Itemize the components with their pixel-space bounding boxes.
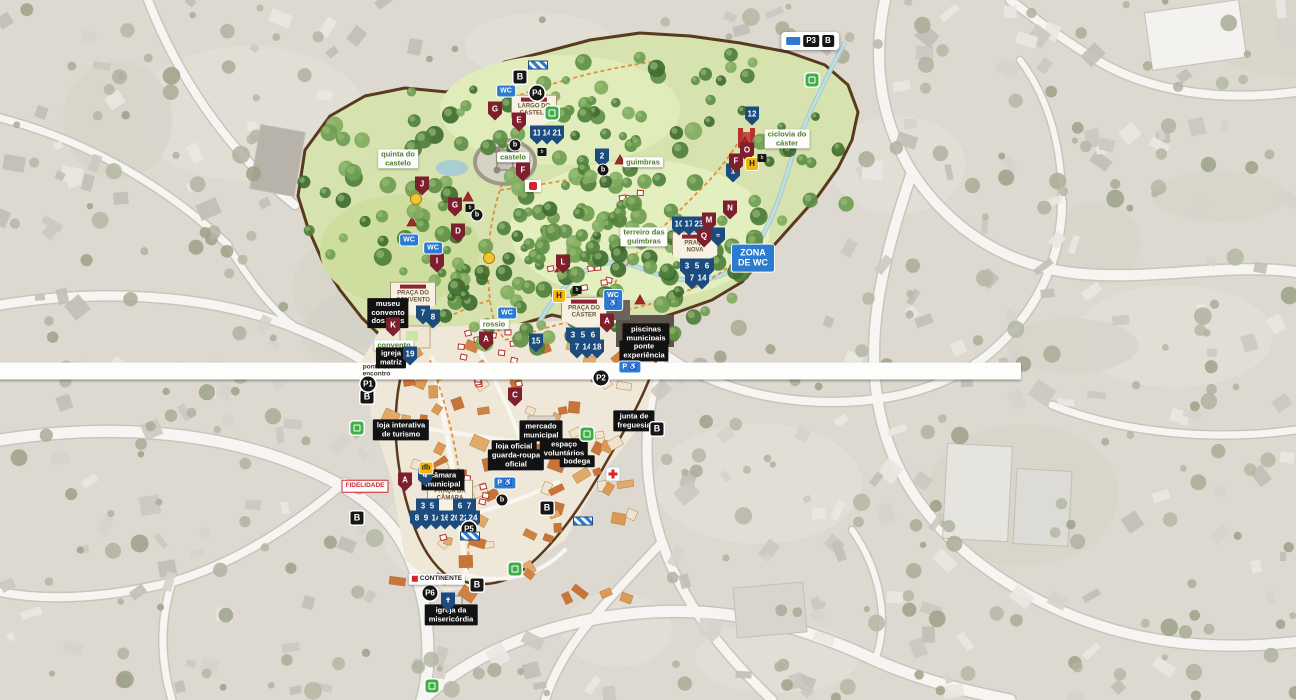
sponsor-logo-badge [525,180,541,192]
bus-stop-badge-6: B [471,579,484,592]
area-badge-k: K [386,318,400,337]
ciclovia-do-caster-label: ciclovia docáster [765,129,810,148]
helipad-badge-2: H [553,290,565,302]
water-point-badge-3: b [598,165,609,176]
igreja-matriz-label: igrejamatriz [376,347,406,368]
mini-badge-1: b [538,148,547,156]
entrance-icon-4 [581,427,594,440]
wc-badge-4: WC [498,308,516,319]
mini-badge-4: b [758,154,767,162]
area-badge-n: N [723,201,737,220]
parking-accessible-badge-2: P ♿ [494,478,515,489]
area-badge-f: F [516,163,530,182]
quinta-do-castelo-label: quinta docastelo [378,149,418,168]
yellow-point-badge-2 [483,252,495,264]
park-info-pill: P3B [781,32,839,50]
parking-badge-p4: P4 [530,86,545,101]
map-marker-layer: LARGO DOCASTELOPRAÇA DOCONVENTOPRAÇANOVA… [0,0,1296,700]
guarda-roupa-oficial-label: guarda-roupaoficial [488,449,544,470]
wc-badge-3: WC [424,243,442,254]
helipad-badge-1: H [746,158,758,170]
wc-badge-2: WC [400,235,418,246]
area-badge-i: I [430,254,444,273]
area-badge-a2: A [600,314,614,333]
castelo-label: castelo [497,152,529,162]
area-badge-g2: G [448,198,462,217]
entrance-icon-5 [509,562,522,575]
parking-badge-p1: P1 [361,377,376,392]
first-aid-icon [607,467,620,480]
terreiro-das-guimbras-label: terreiro dasguimbras [620,227,667,246]
water-point-badge-1: b [510,140,521,151]
area-badge-d: D [451,224,465,243]
area-badge-g: G [488,102,502,121]
gate-marker-3 [573,517,593,526]
entrance-icon-2 [546,106,559,119]
bus-stop-badge-1: B [514,71,527,84]
gate-marker-1 [528,61,548,70]
loja-interativa-de-turismo-label: loja interativade turismo [373,419,429,440]
water-point-badge-4: b [497,495,508,506]
bus-stop-badge-3: B [351,512,364,525]
sponsor-fidelidade-badge: FIDELIDADE [342,480,389,493]
gate-marker-2 [460,532,480,541]
park-pill-logo [786,37,800,45]
water-point-badge-2: b [472,210,483,221]
bus-stop-badge-2: B [361,391,374,404]
area-badge-l: L [556,255,570,274]
area-badge-c: C [508,388,522,407]
yellow-db-badge: db [420,463,433,474]
attraction-badge-15: 15 [529,334,543,353]
entrance-icon-6 [426,679,439,692]
attraction-badge-8: 8 [426,310,440,329]
guimbras-label: guimbras [623,157,663,167]
attraction-badge-18: 18 [590,340,604,359]
entrance-icon-1 [806,73,819,86]
bus-stop-badge-4: B [541,502,554,515]
rossio-label: rossio [480,319,509,329]
wc-badge-1: WC [497,86,515,97]
bus-stop-badge-5: B [651,423,664,436]
entrance-icon-3 [351,421,364,434]
ponte-experiencia-label: ponteexperiência [619,340,668,361]
attraction-badge-21: 21 [550,126,564,145]
mini-badge-3: b [573,286,582,294]
attraction-badge-12: 12 [745,107,759,126]
yellow-point-badge-1 [410,193,422,205]
junta-de-freguesia-label: junta defreguesia [613,410,654,431]
ponto-de-encontro-label: ponto deencontro [0,363,1021,380]
parking-badge-p2: P2 [594,371,609,386]
wc-accessible-badge: WC♿ [604,290,622,310]
parking-badge-p6: P6 [423,586,438,601]
medieval-town-map: LARGO DOCASTELOPRAÇA DOCONVENTOPRAÇANOVA… [0,0,1296,700]
sponsor-continente-badge: CONTINENTE [409,574,465,585]
area-badge-a: A [479,332,493,351]
area-badge-e: E [512,113,526,132]
zona-de-wc-badge: ZONADE WC [732,245,774,272]
parking-accessible-badge: P ♿ [619,362,640,373]
attraction-badge-14b: 14 [695,271,709,290]
area-badge-a3: A [398,473,412,492]
bodega-label: bodega [560,455,595,467]
